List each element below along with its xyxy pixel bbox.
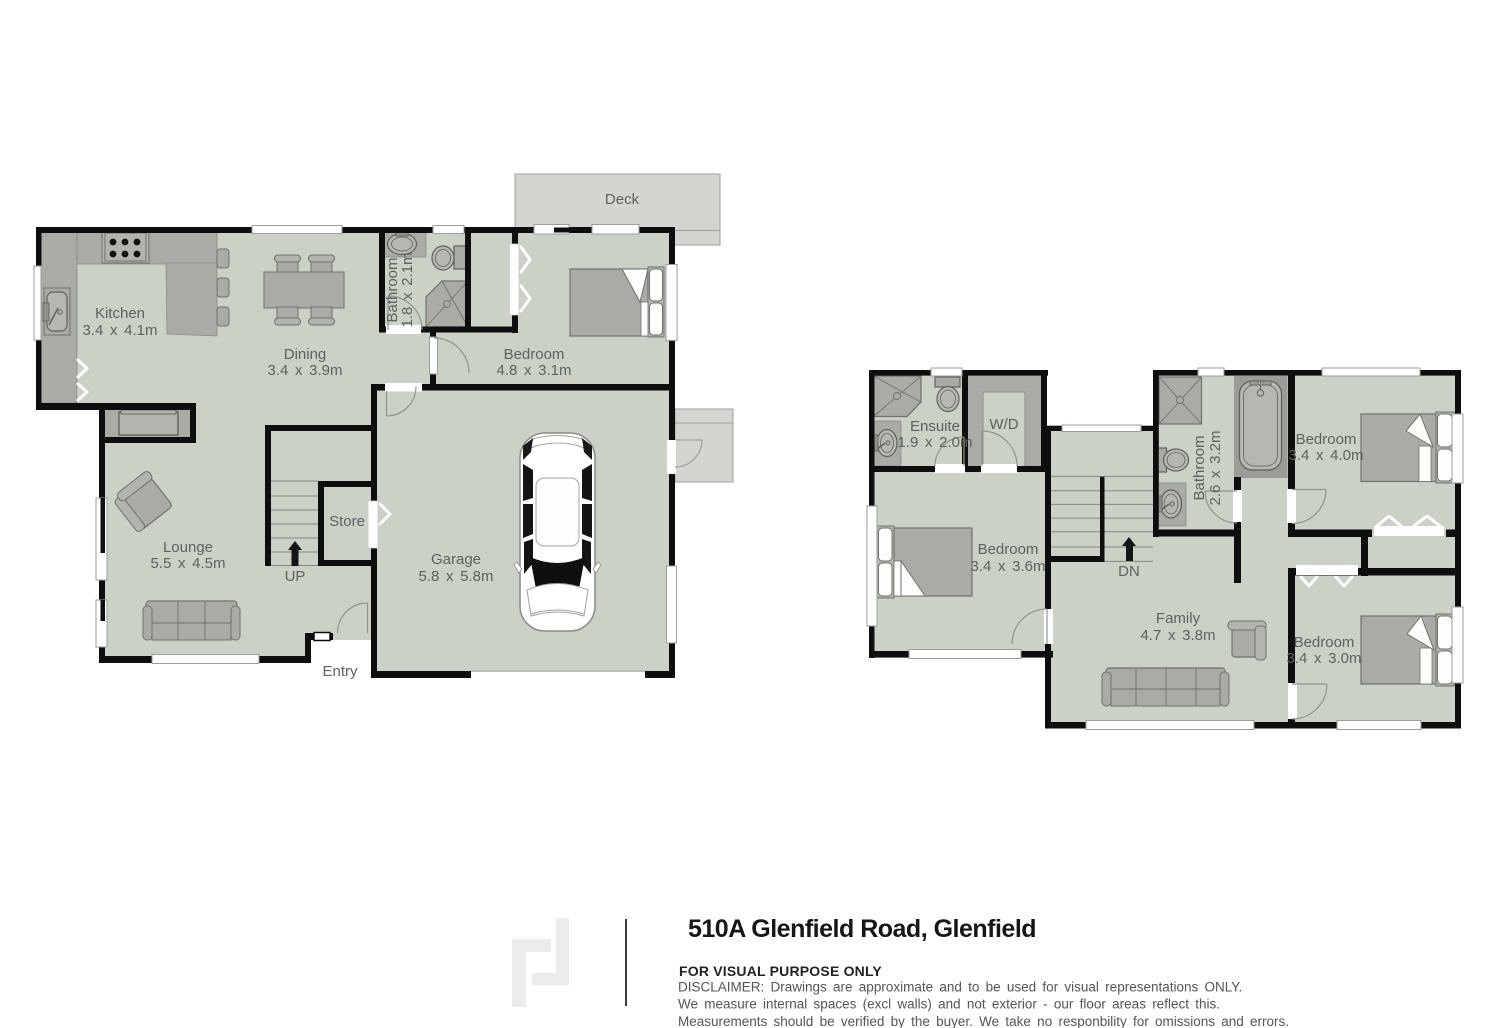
svg-text:Bedroom: Bedroom xyxy=(1294,634,1355,651)
svg-text:Lounge: Lounge xyxy=(163,539,213,556)
svg-text:FOR VISUAL PURPOSE ONLY: FOR VISUAL PURPOSE ONLY xyxy=(679,963,882,979)
svg-text:We measure internal spaces (ex: We measure internal spaces (excl walls) … xyxy=(678,997,1220,1012)
svg-text:5.8 x 5.8m: 5.8 x 5.8m xyxy=(418,568,493,585)
svg-text:Bedroom: Bedroom xyxy=(978,541,1039,558)
svg-text:2.6 x 3.2m: 2.6 x 3.2m xyxy=(1207,430,1224,505)
svg-text:Bedroom: Bedroom xyxy=(1296,431,1357,448)
svg-text:3.4 x 4.1m: 3.4 x 4.1m xyxy=(82,322,157,339)
svg-text:5.5 x 4.5m: 5.5 x 4.5m xyxy=(150,555,225,572)
svg-text:Ensuite: Ensuite xyxy=(910,418,960,435)
svg-text:4.7 x 3.8m: 4.7 x 3.8m xyxy=(1140,627,1215,644)
svg-text:Deck: Deck xyxy=(605,191,640,208)
svg-text:1.9 x 2.0m: 1.9 x 2.0m xyxy=(897,434,972,451)
svg-text:1.8 x 2.1m: 1.8 x 2.1m xyxy=(399,252,416,327)
svg-text:4.8 x 3.1m: 4.8 x 3.1m xyxy=(496,362,571,379)
svg-text:3.4 x 3.6m: 3.4 x 3.6m xyxy=(970,558,1045,575)
svg-text:Bathroom: Bathroom xyxy=(1191,435,1208,500)
svg-text:W/D: W/D xyxy=(989,416,1018,433)
svg-text:3.4 x 3.9m: 3.4 x 3.9m xyxy=(267,362,342,379)
svg-text:Family: Family xyxy=(1156,610,1201,627)
svg-text:DISCLAIMER: Drawings are appr: DISCLAIMER: Drawings are approximate and… xyxy=(678,980,1242,995)
svg-text:Measurements should be verifie: Measurements should be verified by the b… xyxy=(678,1014,1289,1028)
svg-text:Entry: Entry xyxy=(322,663,358,680)
svg-text:3.4 x 4.0m: 3.4 x 4.0m xyxy=(1288,447,1363,464)
svg-text:Kitchen: Kitchen xyxy=(95,305,145,322)
svg-text:510A Glenfield Road, Glenfield: 510A Glenfield Road, Glenfield xyxy=(688,915,1036,943)
svg-text:Garage: Garage xyxy=(431,551,481,568)
svg-text:Dining: Dining xyxy=(284,346,327,363)
svg-text:3.4 x 3.0m: 3.4 x 3.0m xyxy=(1286,650,1361,667)
svg-text:UP: UP xyxy=(285,568,306,585)
svg-text:Bedroom: Bedroom xyxy=(504,346,565,363)
svg-text:DN: DN xyxy=(1118,563,1140,580)
svg-text:Store: Store xyxy=(329,513,365,530)
